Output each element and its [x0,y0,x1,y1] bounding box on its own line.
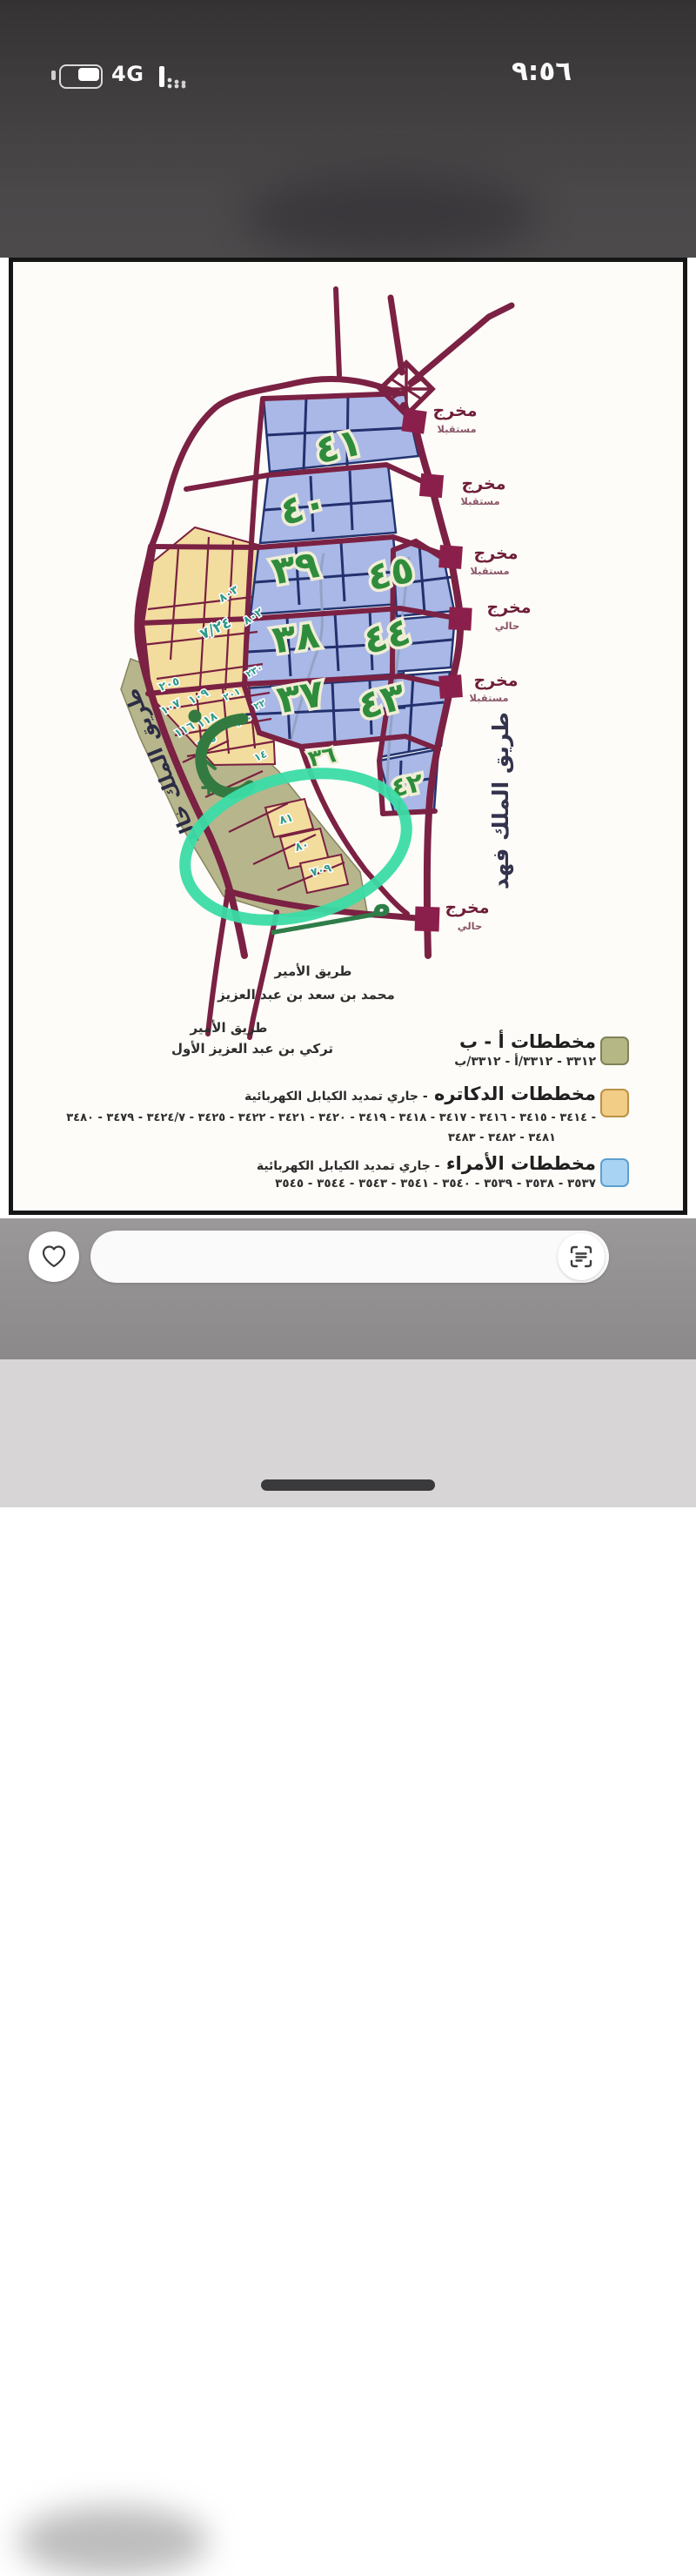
road-north [391,298,402,372]
legend-title-text: مخططات الدكاتره [434,1083,596,1104]
clock-time: ٩:٥٦ [512,56,572,87]
heart-icon [41,1244,67,1269]
district-label-45: ٤٥ [363,547,418,600]
legend-title: مخططات الدكاتره - جاري تمديد الكيابل الك… [244,1083,596,1104]
message-input[interactable] [90,1231,609,1283]
home-indicator[interactable] [261,1479,435,1491]
legend-title: مخططات أ - ب [459,1031,596,1052]
district-label-37: ٣٧ [274,671,328,723]
road-north-branch [336,289,339,375]
legend-title: مخططات الأمراء - جاري تمديد الكيابل الكه… [257,1153,596,1174]
legend-numbers: ٣٤٨١ - ٣٤٨٢ - ٣٤٨٣ [448,1131,556,1144]
district-label-38: ٣٨ [270,613,322,663]
blur-blob [17,2506,209,2576]
photo-viewer-top-area: 4G ٩:٥٦ [0,0,696,258]
exit-label: مخرج [474,544,519,563]
exit-sublabel: مستقبلا [437,423,476,435]
prince-mohammed-road-label-line2: محمد بن سعد بن عبد العزيز [217,987,395,1003]
network-type-label: 4G [111,62,144,86]
exit-sublabel: مستقبلا [460,495,499,507]
live-text-scan-button[interactable] [558,1233,605,1280]
legend-numbers: ٣٣١٢ - ٣٣١٢/أ - ٣٣١٢/ب [454,1055,596,1069]
district-label-41: ٤١ [311,419,365,473]
scan-text-icon [568,1244,594,1270]
exit-sublabel: مستقبلا [469,692,508,704]
legend-numbers: ٣٤١٤ - ٣٤١٥ - ٣٤١٦ - ٣٤١٧ - ٣٤١٨ - ٣٤١٩ … [66,1111,596,1124]
battery-icon [59,64,103,89]
legend-subtitle-text: - جاري تمديد الكيابل الكهربائية [257,1159,440,1173]
prince-turki-road-label-line2: تركي بن عبد العزيز الأول [171,1041,333,1057]
exit-label: مخرج [487,598,532,617]
exit-sublabel: حالي [458,920,483,932]
blurred-photo-edge [244,174,539,258]
district-label-39: ٣٩ [269,542,323,594]
battery-nub-icon [51,70,56,80]
legend-title-text: مخططات أ - ب [459,1031,596,1052]
exit-sublabel: مستقبلا [470,565,509,577]
map-card[interactable]: مخرج مستقبلا مخرج مستقبلا مخرج مستقبلا م… [9,258,687,1215]
legend-title-text: مخططات الأمراء [446,1153,596,1174]
prince-turki-road-label-line1: طريق الأمير [190,1020,268,1036]
legend-numbers: ٣٥٣٧ - ٣٥٣٨ - ٣٥٣٩ - ٣٥٤٠ - ٣٥٤١ - ٣٥٤٣ … [275,1177,596,1191]
exit-label: مخرج [445,898,490,917]
like-button[interactable] [29,1231,79,1282]
exit-label: مخرج [462,474,506,493]
king-fahd-road-label: طريق الملك فهد [488,712,514,889]
legend-swatch-olive [600,1036,629,1065]
legend-subtitle-text: - جاري تمديد الكيابل الكهربائية [244,1090,428,1104]
cellular-signal-icon [158,64,191,89]
legend-swatch-blue [600,1158,629,1187]
exit-label: مخرج [433,401,478,420]
exit-sublabel: حالي [495,620,520,632]
road-northeast [411,305,512,383]
legend-swatch-yellow [600,1089,629,1117]
prince-mohammed-road-label-line1: طريق الأمير [274,963,352,979]
exit-label: مخرج [474,671,519,690]
